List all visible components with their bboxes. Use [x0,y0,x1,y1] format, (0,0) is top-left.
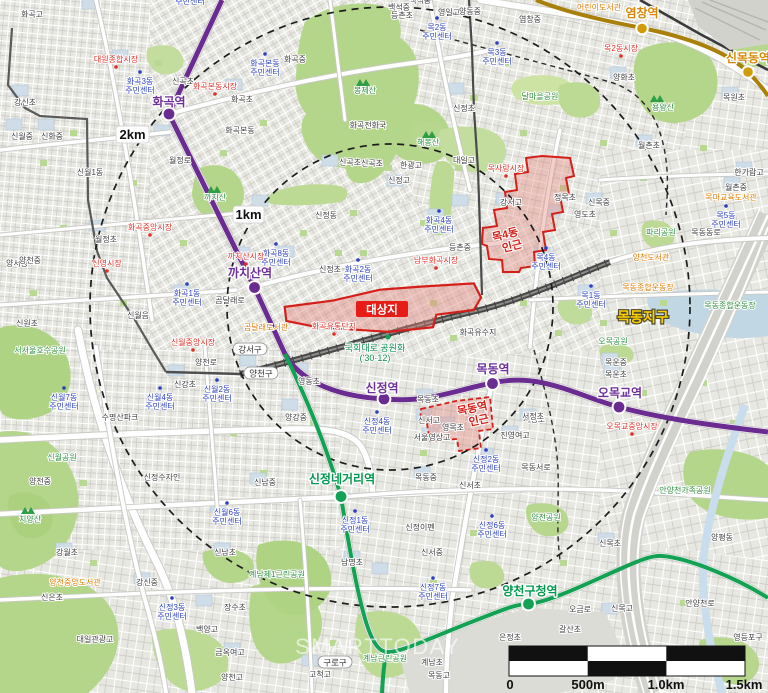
svg-text:목동중: 목동중 [415,473,437,482]
svg-text:신원초: 신원초 [16,319,38,328]
svg-text:신월1동: 신월1동 [77,167,104,177]
svg-text:신월6동: 신월6동 [214,507,241,517]
svg-text:한가람고: 한가람고 [734,168,763,177]
svg-text:양화초: 양화초 [613,73,635,82]
svg-text:신목고: 신목고 [611,604,633,613]
svg-text:신정동: 신정동 [315,210,337,220]
svg-text:영등포구: 영등포구 [733,632,762,642]
svg-text:월촌중: 월촌중 [725,182,747,192]
svg-text:주민센터: 주민센터 [422,31,451,41]
svg-text:신강초: 신강초 [174,379,196,389]
svg-text:화곡중: 화곡중 [284,55,306,64]
svg-text:목사랑시장: 목사랑시장 [488,163,525,173]
svg-text:양천중앙도서관: 양천중앙도서관 [49,577,101,587]
svg-text:화곡역: 화곡역 [152,94,185,109]
svg-text:신월7동: 신월7동 [51,392,78,402]
svg-text:치양산: 치양산 [19,514,42,524]
svg-text:신곡초: 신곡초 [172,77,194,86]
svg-text:화곡8동: 화곡8동 [263,249,290,258]
svg-text:목마교육도서관: 목마교육도서관 [705,192,757,202]
svg-text:화곡초: 화곡초 [231,95,253,104]
svg-text:화곡본동시장: 화곡본동시장 [193,81,238,91]
svg-text:오목교중앙시장: 오목교중앙시장 [606,421,658,431]
svg-text:목동고: 목동고 [428,671,450,680]
svg-text:주민센터: 주민센터 [49,401,78,411]
svg-text:염창중: 염창중 [519,15,541,24]
svg-text:강월초: 강월초 [56,547,78,557]
svg-text:주민센터: 주민센터 [576,299,605,309]
svg-text:수명산파크: 수명산파크 [102,412,139,422]
svg-text:화곡3동: 화곡3동 [127,77,154,86]
svg-text:영도초: 영도초 [574,209,596,219]
svg-text:주민센터: 주민센터 [212,516,241,526]
svg-text:1.0km: 1.0km [648,677,685,692]
svg-text:화곡전화국: 화곡전화국 [350,120,387,130]
svg-text:양천중: 양천중 [29,476,51,486]
svg-text:서울영상고: 서울영상고 [414,432,451,442]
svg-text:화곡고: 화곡고 [21,10,43,19]
svg-text:곰달래로: 곰달래로 [215,296,244,305]
svg-text:신정수자인: 신정수자인 [144,472,181,482]
svg-text:서정초: 서정초 [522,411,544,421]
svg-text:신정고: 신정고 [388,175,410,185]
svg-text:강신중: 강신중 [136,577,158,587]
svg-text:신월중: 신월중 [11,131,33,141]
svg-text:신남초: 신남초 [214,548,236,557]
svg-text:영동초: 영동초 [298,376,320,386]
svg-text:해봉산: 해봉산 [417,137,440,147]
svg-text:목운중: 목운중 [605,358,627,367]
svg-text:신목중: 신목중 [588,198,610,207]
svg-text:2km: 2km [119,127,145,142]
svg-text:목동초: 목동초 [417,395,439,404]
svg-text:월정초: 월정초 [95,234,117,244]
svg-text:곰달래도서관: 곰달래도서관 [244,322,289,332]
svg-text:안양천로: 안양천로 [685,598,714,608]
svg-text:신서중: 신서중 [421,548,443,557]
svg-text:신정2동: 신정2동 [473,454,500,464]
svg-text:은정초: 은정초 [499,632,521,642]
svg-text:강서구: 강서구 [238,345,262,355]
svg-text:주민센터: 주민센터 [362,425,391,435]
svg-text:영일고: 영일고 [438,7,460,17]
svg-text:목동역: 목동역 [476,361,509,376]
svg-text:신남중: 신남중 [254,478,276,487]
svg-text:갈산초: 갈산초 [559,624,581,634]
svg-text:주민센터: 주민센터 [477,529,506,539]
svg-text:신은초: 신은초 [41,593,63,602]
svg-text:양천구청역: 양천구청역 [502,583,557,598]
svg-text:까치산시장: 까치산시장 [228,251,265,261]
svg-text:국회대로 공원화: 국회대로 공원화 [345,343,405,353]
svg-text:대원종합시장: 대원종합시장 [94,54,139,64]
svg-text:목동서로: 목동서로 [521,463,550,472]
svg-text:신정7동: 신정7동 [420,582,447,592]
svg-text:대상지: 대상지 [366,303,398,317]
svg-text:양강중: 양강중 [285,412,307,422]
svg-text:주민센터: 주민센터 [250,67,279,77]
svg-text:1.5km: 1.5km [726,677,763,692]
svg-text:신정4동: 신정4동 [364,416,391,426]
svg-text:남부화곡시장: 남부화곡시장 [414,255,459,265]
svg-text:주민센터: 주민센터 [145,401,174,411]
svg-text:화곡본동: 화곡본동 [250,59,279,68]
svg-text:신월음: 신월음 [127,310,149,320]
svg-text:까치산: 까치산 [204,192,227,202]
svg-text:어린이도서관: 어린이도서관 [577,2,622,12]
svg-text:한광고: 한광고 [400,160,422,170]
svg-text:염창역: 염창역 [625,5,658,20]
svg-text:신정초: 신정초 [319,264,341,274]
svg-text:신영시장: 신영시장 [92,258,122,268]
svg-text:목원초: 목원초 [723,93,745,102]
svg-text:주민센터: 주민센터 [424,224,453,234]
svg-text:신곡초: 신곡초 [339,158,361,167]
svg-text:강서고: 강서고 [500,197,522,207]
svg-text:목2동시장: 목2동시장 [604,43,639,53]
svg-text:목4동: 목4동 [536,253,555,262]
svg-text:정목초: 정목초 [554,192,576,202]
svg-text:영목초: 영목초 [442,422,464,432]
svg-text:0: 0 [506,677,513,692]
svg-text:양천도서관: 양천도서관 [633,252,670,262]
svg-text:진영여고: 진영여고 [500,430,529,440]
svg-text:('30·12): ('30·12) [360,353,391,363]
svg-text:목운초: 목운초 [605,370,627,379]
svg-text:신서고: 신서고 [418,416,440,425]
svg-text:주민센터: 주민센터 [418,591,447,601]
svg-text:신월4동: 신월4동 [147,392,174,402]
svg-text:목동지구: 목동지구 [617,309,669,325]
svg-text:금옥여고: 금옥여고 [215,647,244,657]
svg-text:양동중: 양동중 [459,7,481,16]
svg-text:화곡유수지: 화곡유수지 [460,328,497,337]
svg-text:목동종합운동장: 목동종합운동장 [704,300,756,310]
svg-text:신정3동: 신정3동 [159,602,186,612]
svg-text:목동동로: 목동동로 [691,228,720,237]
svg-text:파리공원: 파리공원 [646,228,675,237]
svg-text:양천중: 양천중 [19,255,41,265]
svg-text:신목초: 신목초 [599,539,621,548]
svg-text:화곡1동: 화곡1동 [174,289,201,298]
svg-text:용왕산: 용왕산 [652,102,675,112]
svg-text:주민센터: 주민센터 [157,611,186,621]
svg-text:양천고: 양천고 [221,672,243,682]
svg-text:신정6동: 신정6동 [479,520,506,530]
svg-text:안양천가족공원: 안양천가족공원 [659,485,711,495]
svg-text:오금로: 오금로 [569,605,591,614]
svg-text:대일관광고: 대일관광고 [77,634,114,644]
svg-text:주민센터: 주민센터 [340,524,369,534]
svg-text:주민센터: 주민센터 [711,219,740,229]
svg-text:목3동: 목3동 [487,48,506,57]
svg-text:주민센터: 주민센터 [175,0,204,6]
svg-text:고척고: 고척고 [309,670,331,679]
svg-text:신목동역: 신목동역 [726,50,768,65]
svg-text:목1동: 목1동 [581,291,600,300]
svg-text:백석중: 백석중 [409,0,431,5]
svg-text:신월2동: 신월2동 [204,384,231,394]
svg-text:목5동: 목5동 [716,211,735,220]
svg-text:주민센터: 주민센터 [125,85,154,95]
svg-text:양천공원: 양천공원 [531,512,560,522]
svg-text:대일고: 대일고 [453,156,475,165]
svg-text:화곡2동: 화곡2동 [345,265,372,274]
svg-text:화곡중앙시장: 화곡중앙시장 [128,222,173,232]
svg-text:목동종합운동장: 목동종합운동장 [622,282,674,292]
svg-text:양천구: 양천구 [249,369,273,379]
svg-text:신정네거리역: 신정네거리역 [309,471,375,486]
svg-text:오목교역: 오목교역 [598,385,642,400]
svg-text:주민센터: 주민센터 [172,297,201,307]
svg-text:신곡초: 신곡초 [361,159,383,168]
svg-text:화곡4동: 화곡4동 [426,216,453,225]
svg-text:까치산역: 까치산역 [228,265,272,280]
svg-text:주민센터: 주민센터 [202,393,231,403]
svg-text:남명초: 남명초 [341,557,363,567]
svg-text:신정초: 신정초 [453,103,475,113]
svg-text:등촌초: 등촌초 [391,11,413,20]
svg-text:백양고: 백양고 [196,624,218,634]
svg-text:등촌중: 등촌중 [449,243,471,252]
svg-text:주민센터: 주민센터 [531,261,560,271]
svg-text:달마을공원: 달마을공원 [522,92,559,101]
svg-text:봉제산: 봉제산 [354,85,377,95]
svg-text:신정역: 신정역 [365,380,398,395]
svg-text:계남제1근린공원: 계남제1근린공원 [249,569,305,579]
svg-text:신월중앙시장: 신월중앙시장 [171,337,216,347]
svg-text:양천로: 양천로 [195,357,217,367]
svg-text:월정로: 월정로 [169,155,191,165]
svg-text:신정1동: 신정1동 [342,515,369,525]
svg-text:신월공원: 신월공원 [47,452,76,462]
svg-text:서서울호수공원: 서서울호수공원 [14,346,66,355]
svg-text:1km: 1km [235,207,261,222]
svg-text:주민센터: 주민센터 [471,463,500,473]
svg-text:SMARTTODAY: SMARTTODAY [295,634,460,659]
svg-text:500m: 500m [571,677,604,692]
svg-text:화곡본동: 화곡본동 [225,126,254,135]
svg-text:주민센터: 주민센터 [343,273,372,283]
svg-text:구로구: 구로구 [323,658,347,668]
svg-text:오목공원: 오목공원 [598,337,627,346]
svg-text:화곡유통단지: 화곡유통단지 [312,321,356,331]
svg-text:양평동: 양평동 [711,532,733,542]
svg-text:목2동: 목2동 [427,23,446,32]
svg-text:강신초: 강신초 [14,97,36,107]
svg-text:신정이펜: 신정이펜 [405,522,434,532]
svg-text:월촌초: 월촌초 [638,140,660,150]
svg-text:신화중: 신화중 [41,132,63,141]
svg-text:장수초: 장수초 [224,602,246,612]
svg-text:주민센터: 주민센터 [482,56,511,66]
svg-text:신서초: 신서초 [459,481,481,490]
